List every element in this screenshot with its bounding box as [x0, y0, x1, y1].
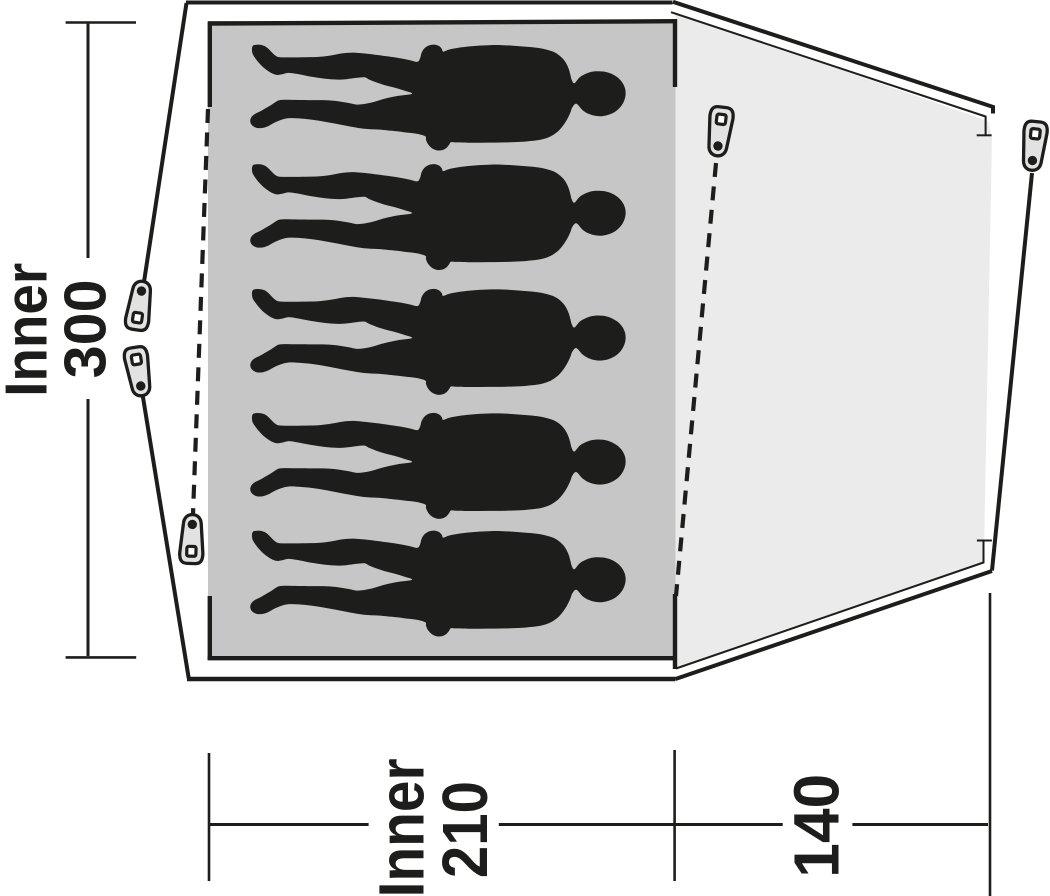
svg-text:Inner: Inner — [365, 758, 437, 896]
svg-text:210: 210 — [429, 781, 501, 878]
svg-text:Inner: Inner — [0, 263, 59, 397]
svg-text:300: 300 — [52, 279, 118, 378]
svg-text:140: 140 — [781, 774, 853, 878]
